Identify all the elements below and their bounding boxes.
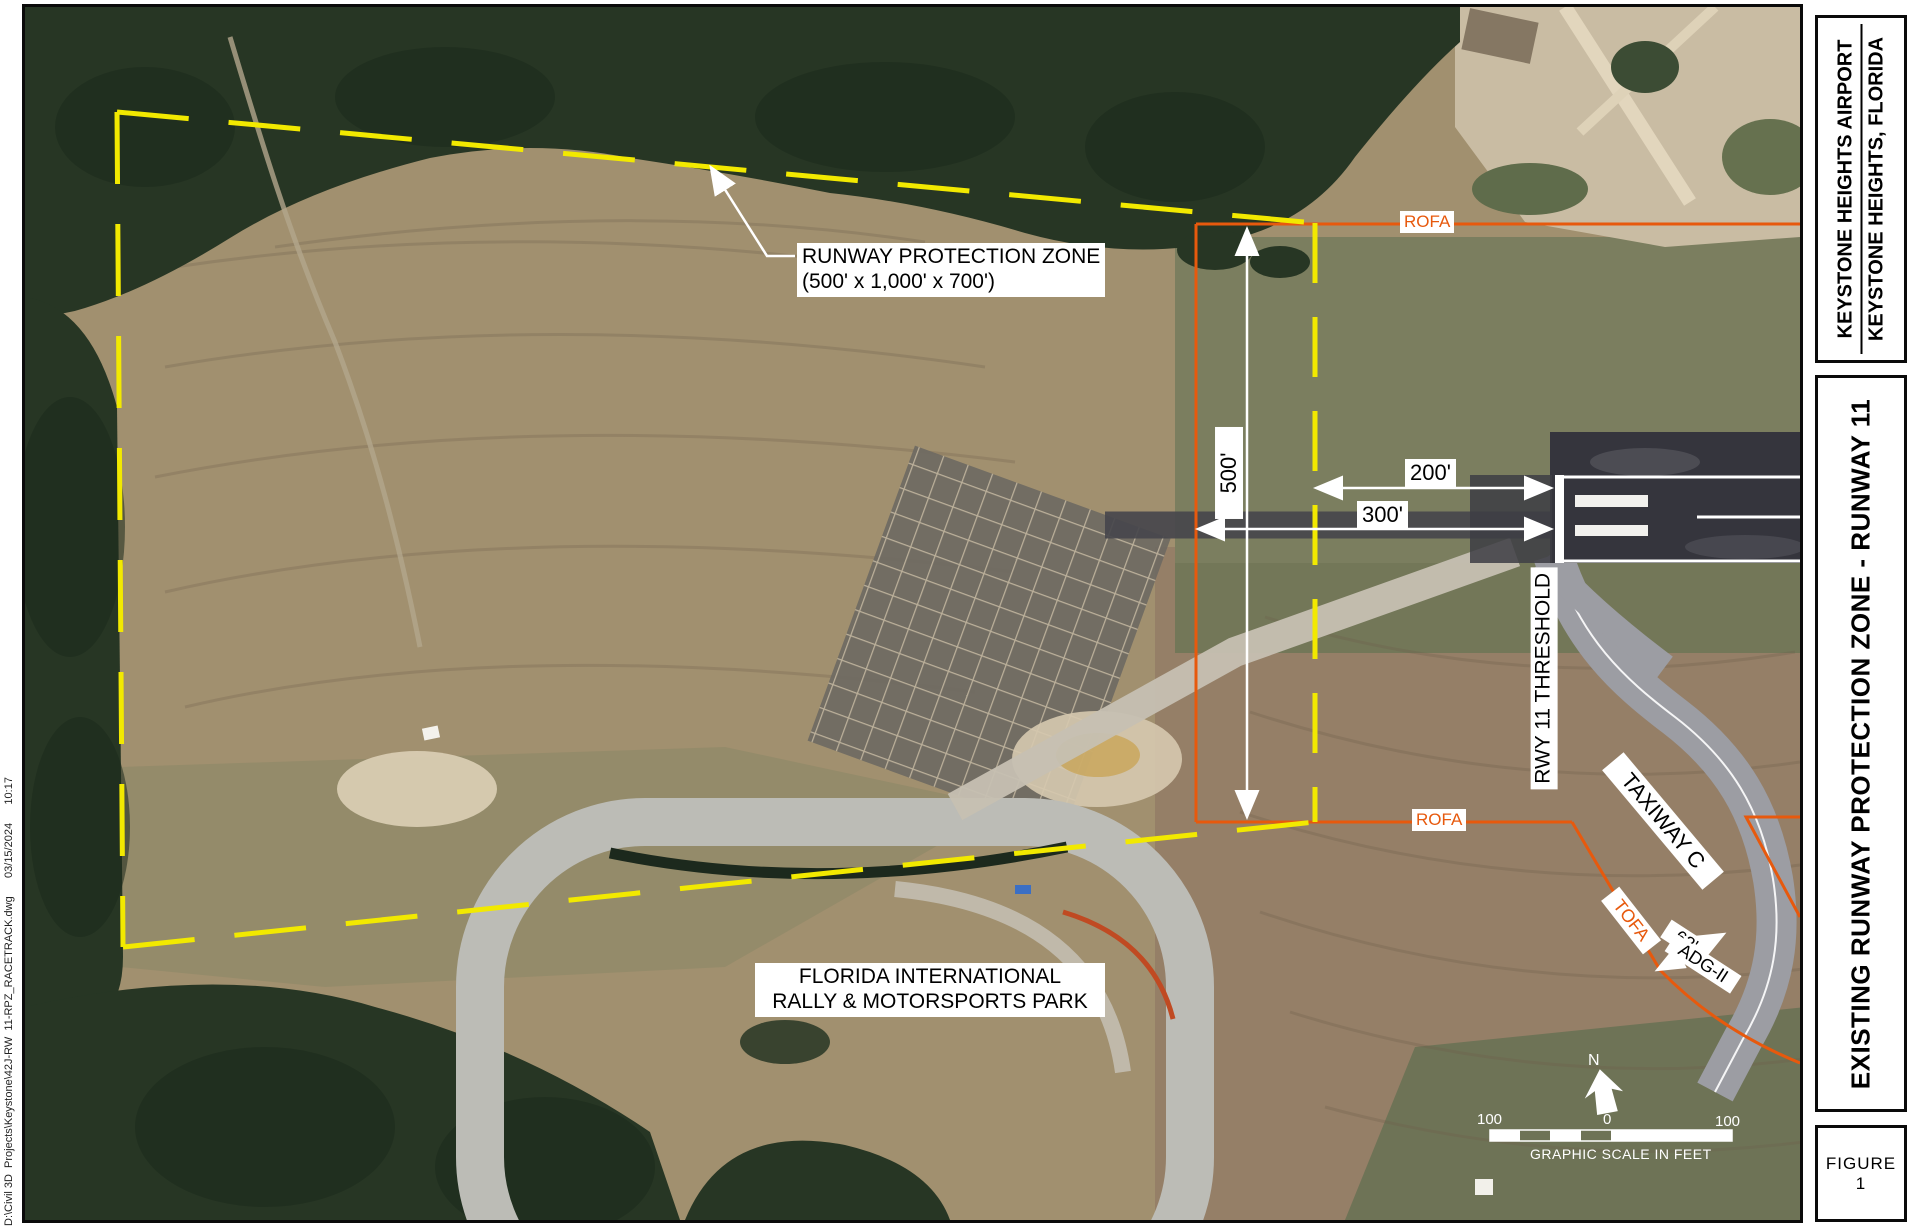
titleblock-sheet-title: EXISTING RUNWAY PROTECTION ZONE - RUNWAY… xyxy=(1815,375,1907,1112)
north-label: N xyxy=(1588,1052,1600,1070)
scale-zero-label: 0 xyxy=(1603,1111,1611,1128)
rpz-callout: RUNWAY PROTECTION ZONE (500' x 1,000' x … xyxy=(797,243,1105,297)
runway-threshold-bar xyxy=(1555,475,1564,563)
figure-number: 1 xyxy=(1856,1174,1866,1194)
rpz-callout-line1: RUNWAY PROTECTION ZONE xyxy=(802,245,1100,270)
dim-500-label: 500' xyxy=(1215,427,1243,519)
rofa-label-bottom: ROFA xyxy=(1412,809,1466,831)
sand-patch-left xyxy=(337,751,497,827)
figure-sheet: D:\Civil 3D Projects\Keystone\42J-RW 11-… xyxy=(0,0,1920,1229)
park-label: FLORIDA INTERNATIONAL RALLY & MOTORSPORT… xyxy=(755,963,1105,1017)
park-label-line1: FLORIDA INTERNATIONAL xyxy=(760,965,1100,990)
file-path-stamp: D:\Civil 3D Projects\Keystone\42J-RW 11-… xyxy=(3,777,15,1226)
airport-name: KEYSTONE HEIGHTS AIRPORT xyxy=(1832,24,1863,354)
rofa-label-top: ROFA xyxy=(1400,211,1454,233)
titleblock-figure: FIGURE 1 xyxy=(1815,1125,1907,1222)
shed xyxy=(1475,1179,1493,1195)
threshold-marking-north xyxy=(1575,495,1648,507)
dim-200-label: 200' xyxy=(1405,459,1456,487)
scale-left-label: 100 xyxy=(1477,1111,1502,1128)
sheet-title: EXISTING RUNWAY PROTECTION ZONE - RUNWAY… xyxy=(1846,381,1877,1107)
titleblock-airport: KEYSTONE HEIGHTS AIRPORT KEYSTONE HEIGHT… xyxy=(1815,15,1907,363)
aerial-map: RUNWAY PROTECTION ZONE (500' x 1,000' x … xyxy=(22,4,1803,1223)
scale-caption: GRAPHIC SCALE IN FEET xyxy=(1530,1146,1710,1162)
scale-right-label: 100 xyxy=(1715,1113,1740,1130)
threshold-label: RWY 11 THRESHOLD xyxy=(1531,567,1558,789)
threshold-marking-south xyxy=(1575,525,1648,536)
figure-label: FIGURE xyxy=(1826,1154,1896,1174)
rpz-callout-line2: (500' x 1,000' x 700') xyxy=(802,270,1100,295)
dim-300-label: 300' xyxy=(1357,501,1408,529)
park-label-line2: RALLY & MOTORSPORTS PARK xyxy=(760,990,1100,1015)
airport-location: KEYSTONE HEIGHTS, FLORIDA xyxy=(1863,24,1891,354)
